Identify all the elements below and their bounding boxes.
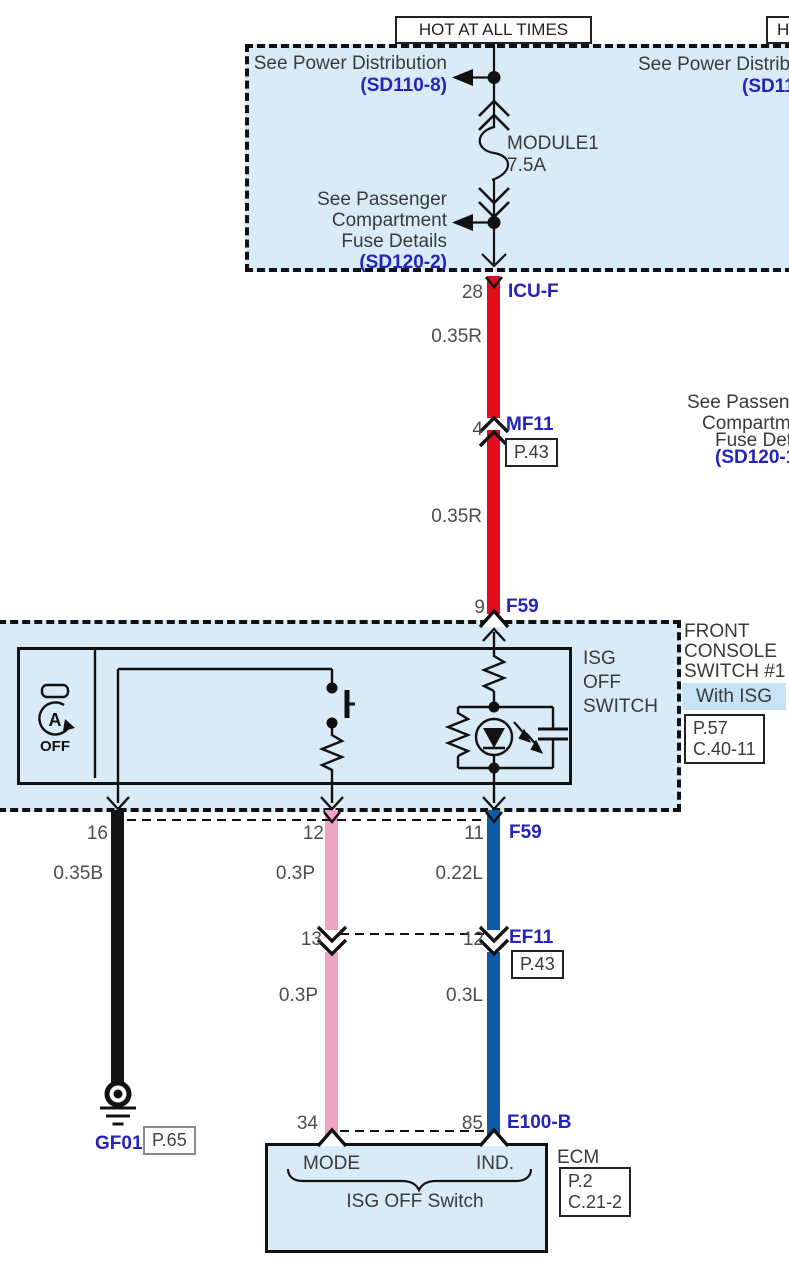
fuse-rating-label: 7.5A	[507, 155, 546, 176]
pin-85-label: 85	[462, 1113, 483, 1134]
switch-contact-dot	[327, 683, 338, 694]
ecm-pin-ind-label: IND.	[476, 1153, 514, 1174]
switch-page-ref-connector: C.40-11	[693, 739, 756, 760]
connector-e100b-label[interactable]: E100-B	[507, 1112, 571, 1133]
pin-arrows	[107, 797, 505, 822]
ground-gf01-label[interactable]: GF01	[95, 1133, 143, 1154]
left-arrow-icon	[452, 69, 473, 86]
connector-icuf-label[interactable]: ICU-F	[508, 281, 559, 302]
connector-ef11-label[interactable]: EF11	[509, 927, 553, 948]
ecm-name-label: ECM	[557, 1147, 599, 1168]
switch-internal-wiring	[95, 632, 553, 803]
e100b-entry-chevron	[480, 1130, 508, 1146]
switch-contact-dot	[327, 718, 338, 729]
gauge-035r-label: 0.35R	[431, 326, 482, 347]
switch-title-line1: FRONT	[684, 621, 749, 642]
junction-dot	[489, 702, 500, 713]
pin-4-label: 4	[472, 419, 483, 440]
gauge-035b-label: 0.35B	[53, 863, 103, 884]
connector-f59-bottom-label[interactable]: F59	[509, 822, 542, 843]
pin-34-label: 34	[297, 1113, 318, 1134]
led-icon	[483, 728, 505, 748]
pin-12-label: 12	[303, 823, 324, 844]
ecm-page-ref[interactable]: P.2 C.21-2	[559, 1167, 631, 1217]
side-note-sd-ref-link[interactable]: (SD120-1	[715, 447, 789, 468]
side-note-line1: See Passeng	[687, 392, 789, 413]
isg-off-switch-label-line2: OFF	[583, 672, 621, 693]
junction-dot	[489, 763, 500, 774]
sd110-ref-link[interactable]: (SD110-8)	[360, 75, 447, 96]
isg-off-switch-label-line3: SWITCH	[583, 696, 658, 717]
fuse-icon	[480, 127, 508, 180]
ecm-page-ref-connector: C.21-2	[568, 1192, 622, 1213]
clipped-sd-ref-link[interactable]: (SD11	[742, 76, 789, 97]
isg-off-switch-label-line1: ISG	[583, 648, 616, 669]
pin-16-label: 16	[87, 823, 108, 844]
switch-title-line2: CONSOLE	[684, 641, 777, 662]
pin-13-label: 13	[301, 929, 322, 950]
mf11-chevrons	[480, 418, 508, 446]
resistor-icon	[322, 735, 342, 770]
ground-icon	[100, 1083, 136, 1124]
sd120-ref-link[interactable]: (SD120-2)	[359, 252, 447, 273]
gauge-035r-label-2: 0.35R	[431, 506, 482, 527]
pin-9-label: 9	[474, 597, 485, 618]
pin-12b-label: 12	[463, 929, 484, 950]
e100b-entry-chevron	[318, 1130, 346, 1146]
switch-page-ref-page: P.57	[693, 718, 756, 739]
fuse-name-label: MODULE1	[507, 133, 599, 154]
wiring-diagram: A	[0, 0, 789, 1280]
switch-title-line3: SWITCH #1	[684, 661, 785, 682]
ef11-page-ref[interactable]: P.43	[511, 950, 564, 979]
icon-letter-a: A	[49, 710, 62, 730]
gauge-03p-label-2: 0.3P	[279, 985, 318, 1006]
gauge-03l-label: 0.3L	[446, 985, 483, 1006]
see-power-distribution-note: See Power Distribution	[254, 53, 447, 74]
clipped-power-note: See Power Distribu	[638, 54, 789, 75]
ecm-page-ref-page: P.2	[568, 1171, 622, 1192]
variant-badge: With ISG	[682, 683, 786, 710]
left-arrow-icon	[452, 214, 473, 231]
gauge-03p-label: 0.3P	[276, 863, 315, 884]
pin-28-label: 28	[462, 282, 483, 303]
pin-11-label: 11	[464, 823, 484, 844]
gauge-022l-label: 0.22L	[435, 863, 483, 884]
connector-f59-top-label[interactable]: F59	[506, 596, 539, 617]
light-rays-icon	[514, 722, 541, 752]
resistor-icon	[484, 656, 504, 691]
hot-at-all-times-label: HOT AT ALL TIMES	[395, 16, 592, 44]
hot-at-all-times-label-clipped: H	[766, 16, 789, 44]
connector-mf11-label[interactable]: MF11	[506, 414, 554, 435]
resistor-icon	[448, 713, 468, 756]
see-passenger-note-line1: See Passenger	[317, 189, 447, 210]
ecm-caption: ISG OFF Switch	[290, 1191, 540, 1212]
switch-page-ref[interactable]: P.57 C.40-11	[684, 714, 765, 764]
ground-page-ref[interactable]: P.65	[143, 1126, 196, 1155]
isg-off-button-icon: A	[39, 685, 75, 734]
mf11-page-ref[interactable]: P.43	[505, 438, 558, 467]
icon-off-text: OFF	[37, 736, 73, 757]
see-passenger-note-line2: Compartment	[332, 210, 447, 231]
ecm-pin-mode-label: MODE	[303, 1153, 360, 1174]
junction-dot	[488, 71, 501, 84]
see-passenger-note-line3: Fuse Details	[341, 231, 447, 252]
